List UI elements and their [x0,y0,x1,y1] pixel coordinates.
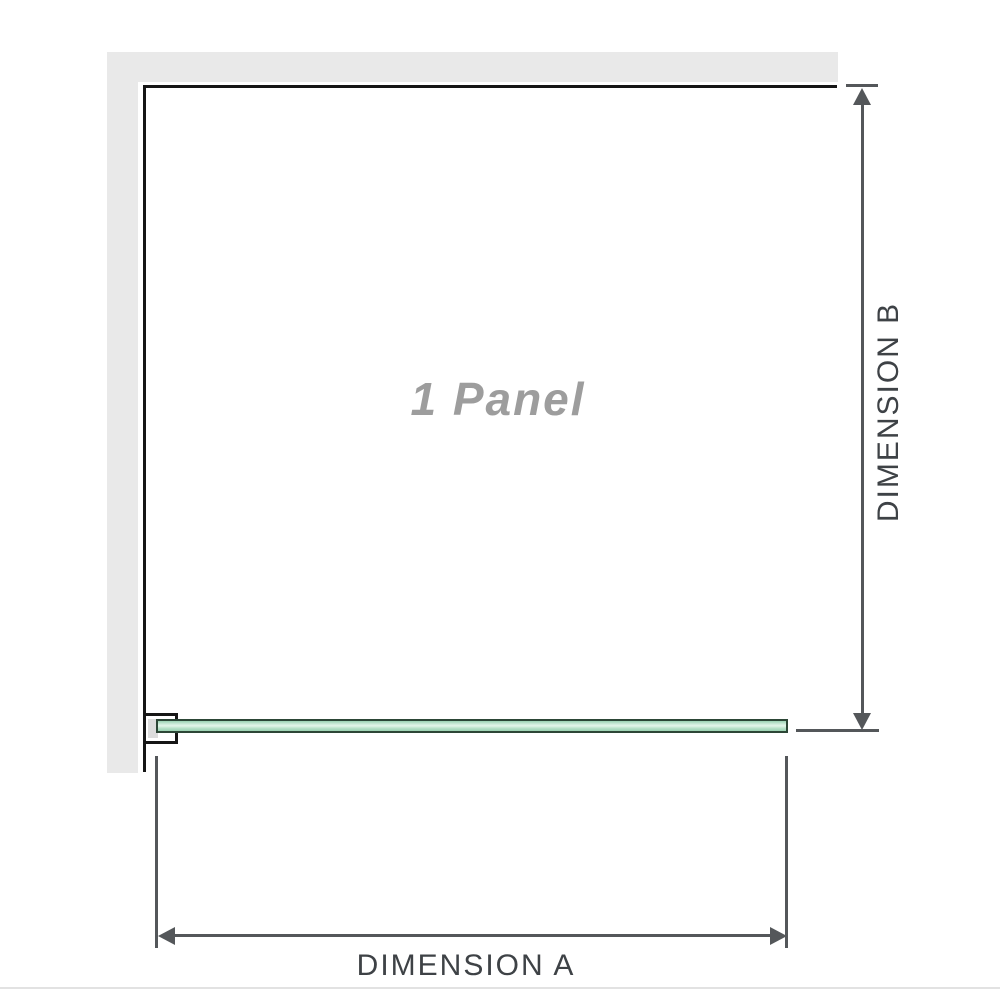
dimension-b-arrow-down-icon [853,713,871,730]
dimension-a-arrow-left-icon [158,927,175,945]
enclosure-outline-top [143,85,837,88]
dimension-b-label: DIMENSION B [872,302,906,522]
dimension-b-line [861,100,864,716]
enclosure-outline-left [143,85,146,772]
dimension-a-arrow-right-icon [770,927,787,945]
bottom-divider [0,987,1000,989]
wall-left [107,52,138,773]
dimension-a-label: DIMENSION A [357,949,576,983]
dimension-a-tick-right [785,756,788,948]
dimension-b-tick-top [846,84,878,87]
wall-top [107,52,838,82]
dimension-a-line [170,934,775,937]
dimension-a-tick-left [155,756,158,948]
glass-panel [156,719,788,733]
panel-count-label: 1 Panel [410,372,585,426]
shower-panel-diagram: 1 Panel DIMENSION B DIMENSION A [0,0,1000,1000]
dimension-b-arrow-up-icon [853,88,871,105]
